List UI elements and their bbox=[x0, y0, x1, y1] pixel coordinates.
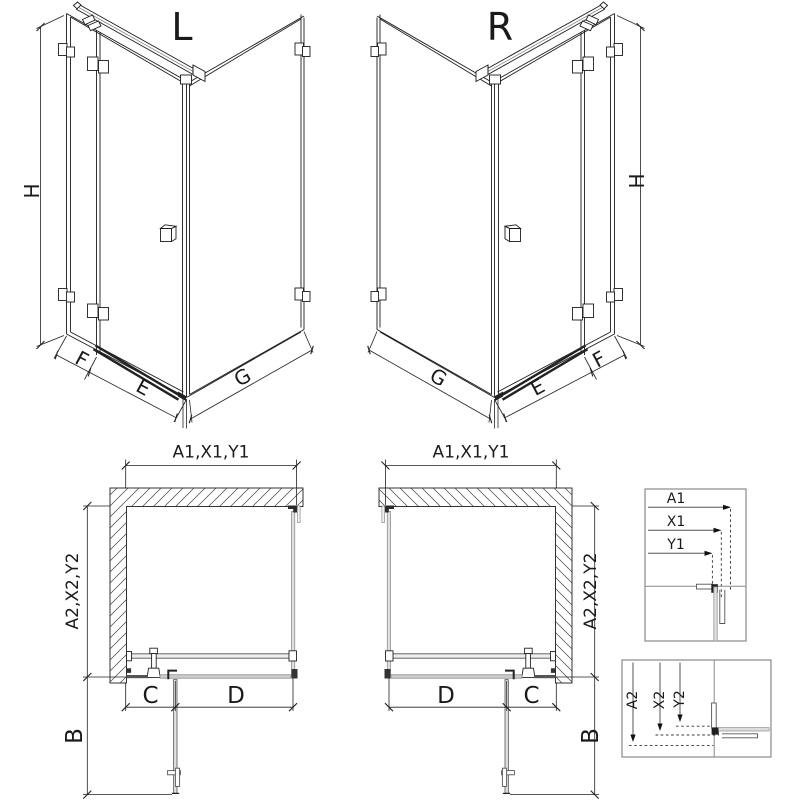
label-b-right: B bbox=[578, 728, 604, 744]
label-c-right: C bbox=[523, 683, 539, 709]
plan-view-left bbox=[83, 460, 303, 799]
hinge-pivot bbox=[147, 648, 160, 677]
label-fixed-panel-right: F bbox=[588, 346, 609, 373]
label-detail-a1: A1 bbox=[667, 491, 685, 507]
label-height-right: H bbox=[625, 173, 649, 188]
drawing-canvas: L R H H F E G F E G A1,X1,Y1 A1,X1,Y1 A2… bbox=[0, 0, 800, 800]
label-d-right: D bbox=[437, 683, 455, 709]
label-c-left: C bbox=[142, 683, 158, 709]
label-d-left: D bbox=[227, 683, 245, 709]
label-title-right: R bbox=[487, 5, 513, 49]
detail-box-width bbox=[645, 489, 746, 641]
plan-view-right bbox=[379, 460, 599, 799]
label-side-depth-right: A2,X2,Y2 bbox=[581, 553, 601, 630]
sill-gray bbox=[160, 675, 291, 678]
label-side-panel-left: G bbox=[230, 363, 255, 392]
label-front-width-left: A1,X1,Y1 bbox=[173, 443, 250, 463]
label-detail-x2: X2 bbox=[652, 691, 668, 710]
panel-bottom-fitting bbox=[292, 669, 298, 679]
sill-wall-block bbox=[127, 668, 132, 673]
label-b-left: B bbox=[62, 728, 88, 744]
bar-end-fitting bbox=[289, 651, 297, 661]
bar-wall-fitting bbox=[127, 652, 132, 661]
label-front-width-right: A1,X1,Y1 bbox=[433, 443, 510, 463]
label-side-depth-left: A2,X2,Y2 bbox=[63, 553, 83, 630]
wall-profile-stub bbox=[298, 506, 301, 523]
sill-dark-segment bbox=[127, 675, 149, 678]
label-detail-y1: Y1 bbox=[666, 537, 684, 553]
label-detail-x1: X1 bbox=[667, 514, 686, 530]
detail-box-depth bbox=[622, 660, 771, 757]
label-side-panel-right: G bbox=[426, 363, 451, 392]
door-hinges bbox=[88, 57, 109, 320]
label-detail-y2: Y2 bbox=[672, 690, 688, 708]
label-height-left: H bbox=[20, 183, 44, 198]
label-detail-a2: A2 bbox=[625, 691, 641, 709]
label-fixed-panel-left: F bbox=[71, 346, 92, 373]
door-knob bbox=[161, 225, 177, 242]
label-title-left: L bbox=[171, 5, 192, 49]
shower-enclosure-technical-drawing: L R H H F E G F E G A1,X1,Y1 A1,X1,Y1 A2… bbox=[0, 0, 800, 800]
